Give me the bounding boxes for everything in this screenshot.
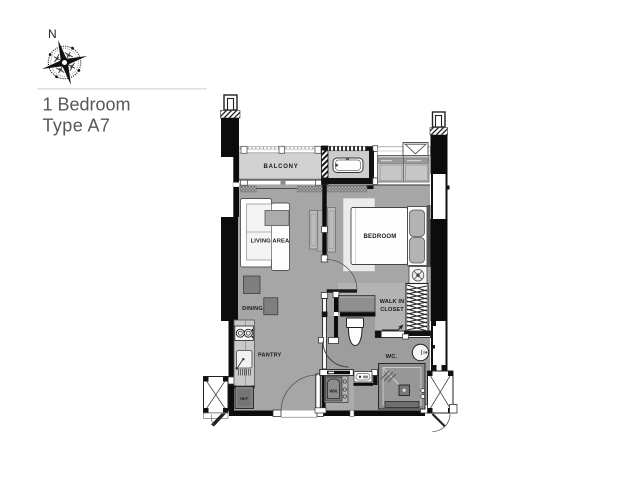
svg-text:N: N (48, 27, 57, 41)
svg-text:PANTRY: PANTRY (258, 353, 282, 359)
svg-text:DINING: DINING (242, 306, 263, 312)
svg-text:1 Bedroom: 1 Bedroom (43, 95, 131, 115)
svg-text:REF: REF (240, 396, 249, 401)
svg-text:Type A7: Type A7 (43, 116, 111, 136)
svg-text:WM.: WM. (329, 389, 338, 394)
svg-text:BEDROOM: BEDROOM (363, 234, 396, 240)
svg-text:LIVING AREA: LIVING AREA (251, 239, 290, 245)
svg-text:BALCONY: BALCONY (264, 164, 299, 170)
svg-text:WALK IN: WALK IN (380, 299, 405, 305)
svg-text:WC.: WC. (386, 354, 398, 360)
svg-text:CLOSET: CLOSET (380, 307, 404, 313)
